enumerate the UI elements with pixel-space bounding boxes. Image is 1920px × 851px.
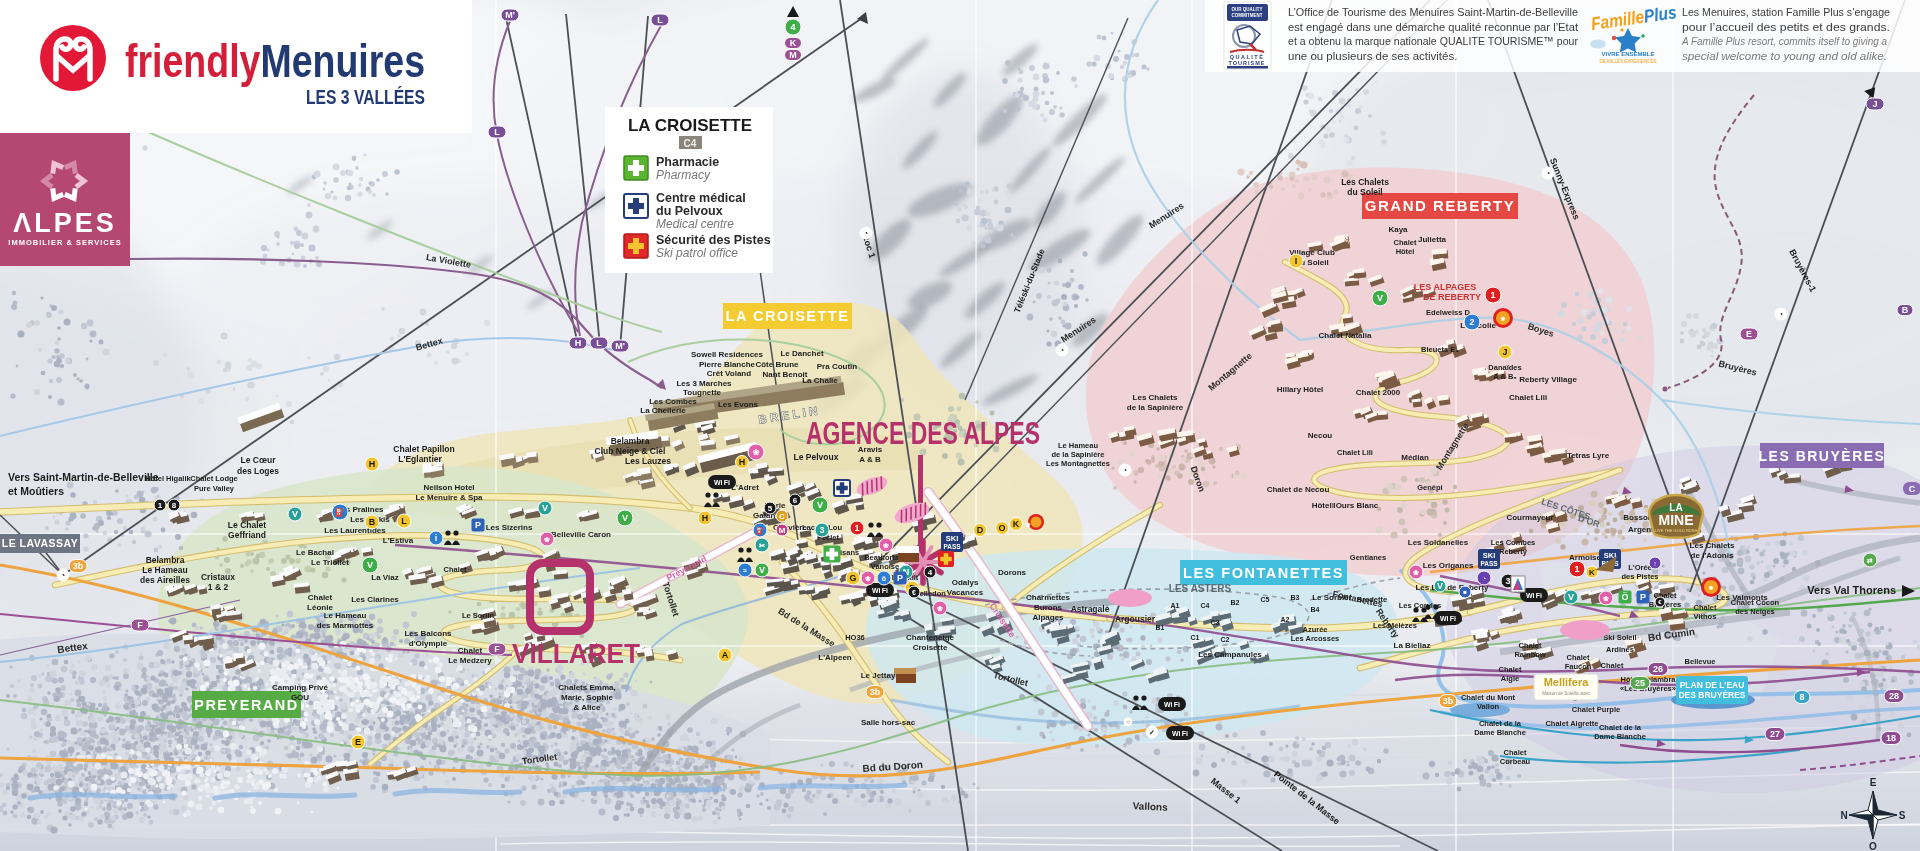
svg-text:28: 28 <box>1889 691 1899 701</box>
svg-text:Wi Fi: Wi Fi <box>1526 592 1542 599</box>
svg-text:Sowell Residences: Sowell Residences <box>691 350 764 359</box>
svg-text:✄: ✄ <box>759 542 765 549</box>
svg-text:Salle hors-sac: Salle hors-sac <box>861 718 916 727</box>
svg-text:Chalet de Necou: Chalet de Necou <box>1267 485 1330 494</box>
svg-text:VIVRE ENSEMBLE: VIVRE ENSEMBLE <box>1601 51 1654 57</box>
svg-text:V: V <box>759 565 765 575</box>
svg-text:LES 3 VALLÉES: LES 3 VALLÉES <box>306 85 425 108</box>
svg-text:Chanteneige: Chanteneige <box>906 633 955 642</box>
svg-text:Chalet Lili: Chalet Lili <box>1337 448 1373 457</box>
svg-text:C3: C3 <box>1211 619 1220 626</box>
svg-text:↑: ↑ <box>1653 560 1657 567</box>
svg-text:Nant Benoit: Nant Benoit <box>763 370 808 379</box>
svg-text:Vithos: Vithos <box>1694 612 1717 621</box>
svg-text:O: O <box>1869 841 1877 851</box>
svg-text:Astragale: Astragale <box>1071 604 1110 614</box>
svg-text:OUR QUALITY: OUR QUALITY <box>1232 7 1263 12</box>
svg-text:Dame Blanche: Dame Blanche <box>1594 732 1646 741</box>
svg-text:M': M' <box>615 341 625 351</box>
svg-text:Hôtel‖Ours Blanc: Hôtel‖Ours Blanc <box>1312 501 1379 510</box>
svg-text:K: K <box>790 38 797 48</box>
svg-text:A & B: A & B <box>859 455 881 464</box>
svg-text:La Biellaz: La Biellaz <box>1394 641 1431 650</box>
svg-text:Belambra: Belambra <box>611 436 650 446</box>
svg-text:Le Hameau: Le Hameau <box>142 565 187 575</box>
svg-text:SKI: SKI <box>1483 551 1496 560</box>
svg-text:1: 1 <box>854 523 859 533</box>
svg-text:Gentianes: Gentianes <box>1350 553 1386 562</box>
svg-text:B2: B2 <box>1231 599 1240 606</box>
svg-text:Chalet du Mont: Chalet du Mont <box>1461 693 1516 702</box>
svg-text:Tougnette: Tougnette <box>683 388 722 397</box>
svg-text:8: 8 <box>1799 692 1804 702</box>
svg-text:Danaïdes: Danaïdes <box>1488 363 1521 372</box>
svg-text:S: S <box>1899 810 1906 821</box>
svg-text:Marie, Sophie: Marie, Sophie <box>561 693 614 702</box>
svg-text:L'Orée: L'Orée <box>1628 563 1651 572</box>
svg-text:Cristaux: Cristaux <box>201 572 235 582</box>
svg-text:3b: 3b <box>73 561 84 571</box>
svg-text:Les Combes: Les Combes <box>649 397 697 406</box>
svg-text:V: V <box>1568 592 1574 602</box>
svg-text:Les Balcons: Les Balcons <box>404 629 452 638</box>
svg-text:L’Office de Tourisme des Menui: L’Office de Tourisme des Menuires Saint-… <box>1288 6 1578 18</box>
svg-text:Chalet: Chalet <box>1567 653 1590 662</box>
svg-text:Chalet Lodge: Chalet Lodge <box>190 474 238 483</box>
svg-text:K: K <box>1013 519 1020 529</box>
svg-text:F: F <box>137 620 143 630</box>
svg-text:Rainbow: Rainbow <box>1514 650 1545 659</box>
svg-text:◔: ◔ <box>1482 575 1486 582</box>
svg-text:PASS: PASS <box>1480 560 1498 567</box>
svg-text:H: H <box>702 513 709 523</box>
svg-text:27: 27 <box>1770 729 1780 739</box>
svg-text:La Challe: La Challe <box>802 376 838 385</box>
svg-text:Geffriand: Geffriand <box>228 530 266 540</box>
svg-text:Chalet 2000: Chalet 2000 <box>1356 388 1401 397</box>
svg-text:Le Triollet: Le Triollet <box>311 558 349 567</box>
svg-text:≈: ≈ <box>743 567 747 574</box>
svg-text:Chalet Lili: Chalet Lili <box>1509 393 1547 402</box>
svg-text:❀: ❀ <box>865 575 871 582</box>
svg-text:QUALITÉ: QUALITÉ <box>1230 53 1265 60</box>
svg-text:Le Hameau: Le Hameau <box>1058 441 1098 450</box>
svg-text:L: L <box>657 15 663 25</box>
svg-text:C4: C4 <box>1201 602 1210 609</box>
svg-text:C: C <box>1909 484 1916 494</box>
svg-text:3: 3 <box>1505 576 1510 586</box>
svg-text:Belleville Caron: Belleville Caron <box>551 530 611 539</box>
svg-text:Chalet: Chalet <box>458 646 483 655</box>
svg-text:Mellifera: Mellifera <box>1544 676 1590 688</box>
svg-text:La Cheilerie: La Cheilerie <box>640 406 686 415</box>
svg-text:Wi Fi: Wi Fi <box>1164 701 1180 708</box>
svg-text:Ardines: Ardines <box>1606 645 1634 654</box>
svg-text:L'Eglantier: L'Eglantier <box>398 454 442 464</box>
svg-text:est engagé dans une démarche q: est engagé dans une démarche qualité rec… <box>1288 21 1579 33</box>
svg-text:Vallon: Vallon <box>1477 702 1500 711</box>
svg-text:Les Lys de Reberty: Les Lys de Reberty <box>1415 583 1489 592</box>
svg-text:⛽: ⛽ <box>335 507 345 517</box>
svg-text:26: 26 <box>1653 664 1663 674</box>
svg-text:Le Jettay: Le Jettay <box>861 671 896 680</box>
svg-text:MINE: MINE <box>1659 512 1694 528</box>
svg-text:H: H <box>739 457 746 467</box>
svg-text:Chalet de la: Chalet de la <box>1479 719 1522 728</box>
svg-text:pour l’accueil des petits et d: pour l’accueil des petits et des grands. <box>1682 21 1890 33</box>
svg-text:€: € <box>912 589 916 596</box>
svg-text:Les Campanules: Les Campanules <box>1198 650 1262 659</box>
svg-text:PLAN DE L’EAU: PLAN DE L’EAU <box>1680 680 1745 690</box>
svg-text:Pharmacie: Pharmacie <box>656 155 719 169</box>
svg-text:AGENCE DES ALPES: AGENCE DES ALPES <box>806 416 1040 451</box>
svg-text:B1: B1 <box>1156 624 1165 631</box>
svg-text:B4: B4 <box>1311 606 1320 613</box>
svg-text:Hôtel: Hôtel <box>1396 247 1415 256</box>
svg-text:8: 8 <box>172 501 177 510</box>
svg-text:L'Alpeen: L'Alpeen <box>818 653 852 662</box>
svg-text:Wi Fi: Wi Fi <box>1172 730 1188 737</box>
svg-text:Chalet: Chalet <box>1601 661 1624 670</box>
svg-text:D: D <box>977 525 984 535</box>
svg-text:Alpages: Alpages <box>1032 613 1064 622</box>
svg-text:F: F <box>494 644 500 654</box>
svg-text:B: B <box>1902 305 1909 315</box>
svg-text:V: V <box>1437 581 1443 591</box>
svg-text:Vallons: Vallons <box>1132 800 1168 813</box>
svg-text:C4: C4 <box>684 138 697 149</box>
svg-text:Club Neige & Ciel: Club Neige & Ciel <box>595 446 666 456</box>
svg-text:V: V <box>817 500 823 510</box>
svg-text:Fauçon: Fauçon <box>1565 662 1592 671</box>
svg-text:Pra Coutin: Pra Coutin <box>817 362 858 371</box>
svg-text:GOU: GOU <box>291 693 309 702</box>
svg-text:L: L <box>494 127 500 137</box>
svg-text:Maison de Soleille avec: Maison de Soleille avec <box>1542 691 1590 696</box>
svg-text:Les Arcosses: Les Arcosses <box>1291 634 1340 643</box>
svg-text:Dorons: Dorons <box>998 568 1027 577</box>
svg-text:A & B₅: A & B₅ <box>1493 372 1517 381</box>
svg-text:❀: ❀ <box>544 536 550 543</box>
svg-text:B3: B3 <box>1291 594 1300 601</box>
svg-text:V: V <box>1377 293 1383 303</box>
svg-text:Vers Val Thorens: Vers Val Thorens <box>1807 584 1896 596</box>
svg-text:E: E <box>1746 329 1752 339</box>
svg-text:Charmettes: Charmettes <box>1026 593 1071 602</box>
svg-text:Hillary Hôtel: Hillary Hôtel <box>1277 385 1324 394</box>
svg-text:C1: C1 <box>1191 634 1200 641</box>
svg-text:Chalet Papillon: Chalet Papillon <box>393 444 454 454</box>
svg-text:SKI: SKI <box>946 534 959 543</box>
svg-text:Chalets Emma,: Chalets Emma, <box>558 683 615 692</box>
svg-text:P: P <box>475 520 481 530</box>
svg-text:O: O <box>998 523 1005 533</box>
svg-text:de la Sapinière: de la Sapinière <box>1127 403 1184 412</box>
svg-text:Les Lauzes: Les Lauzes <box>625 456 671 466</box>
svg-text:Le Cœur: Le Cœur <box>241 455 277 465</box>
svg-text:des Marmottes: des Marmottes <box>317 621 374 630</box>
svg-text:LES FONTANETTES: LES FONTANETTES <box>1183 565 1344 581</box>
svg-text:Les 3 Marches: Les 3 Marches <box>676 379 732 388</box>
svg-text:Corbeau: Corbeau <box>1500 757 1531 766</box>
svg-text:VILLARET: VILLARET <box>512 638 640 669</box>
svg-text:Les Mélèzes: Les Mélèzes <box>1373 621 1417 630</box>
svg-text:1 & 2: 1 & 2 <box>208 582 229 592</box>
svg-text:3b: 3b <box>870 687 881 697</box>
svg-text:A1: A1 <box>1171 602 1180 609</box>
svg-text:Chalet: Chalet <box>308 593 333 602</box>
svg-text:✓: ✓ <box>1149 729 1155 736</box>
svg-text:M: M <box>789 50 797 60</box>
svg-text:Chalet: Chalet <box>1499 665 1522 674</box>
svg-text:GRAND REBERTY: GRAND REBERTY <box>1365 197 1515 214</box>
svg-text:Les Chalets: Les Chalets <box>1133 393 1178 402</box>
svg-text:du Soleil: du Soleil <box>1347 187 1382 197</box>
svg-text:Chalet: Chalet <box>444 565 467 574</box>
svg-text:L: L <box>401 516 407 526</box>
svg-text:Le Sorlin: Le Sorlin <box>462 611 495 620</box>
svg-text:◔: ◔ <box>61 571 66 580</box>
svg-text:LES ALPAGES: LES ALPAGES <box>1414 282 1477 292</box>
svg-text:HO36: HO36 <box>845 633 865 642</box>
svg-text:Le Chalet: Le Chalet <box>228 520 266 530</box>
svg-text:special welcome to young and o: special welcome to young and old alike. <box>1682 50 1887 62</box>
svg-text:C5: C5 <box>1261 596 1270 603</box>
svg-text:○: ○ <box>1126 719 1130 725</box>
svg-text:COMMITMENT: COMMITMENT <box>1232 13 1263 18</box>
svg-text:Argousier: Argousier <box>1115 614 1156 624</box>
svg-text:i: i <box>435 533 438 543</box>
svg-text:Necou: Necou <box>1308 431 1333 440</box>
svg-text:J: J <box>1872 99 1877 109</box>
svg-text:Chalet de la: Chalet de la <box>1599 723 1642 732</box>
svg-text:◔: ◔ <box>1123 466 1128 475</box>
svg-text:V: V <box>367 560 373 570</box>
svg-text:Medical centre: Medical centre <box>656 217 734 231</box>
svg-text:V: V <box>542 503 548 513</box>
svg-text:❀: ❀ <box>1603 595 1609 602</box>
svg-text:L'Estiva: L'Estiva <box>383 536 414 545</box>
svg-text:Courmayeur: Courmayeur <box>1506 513 1553 522</box>
svg-text:3b: 3b <box>1443 696 1454 706</box>
svg-text:G: G <box>849 573 856 583</box>
svg-text:❀: ❀ <box>883 542 889 549</box>
svg-text:◔: ◔ <box>1060 346 1065 355</box>
svg-text:Centre médical: Centre médical <box>656 191 746 205</box>
svg-text:C: C <box>779 512 785 521</box>
svg-text:Wi Fi: Wi Fi <box>872 587 888 594</box>
svg-text:✸: ✸ <box>1499 316 1506 322</box>
svg-text:La Viaz: La Viaz <box>371 573 398 582</box>
svg-text:LE LAVASSAY: LE LAVASSAY <box>2 537 79 549</box>
svg-text:6: 6 <box>793 496 798 505</box>
svg-text:Dame Blanche: Dame Blanche <box>1474 728 1526 737</box>
svg-text:2: 2 <box>1469 317 1474 327</box>
svg-text:✸: ✸ <box>1707 585 1714 591</box>
svg-text:Les Origanes: Les Origanes <box>1423 561 1474 570</box>
svg-text:Ski patrol office: Ski patrol office <box>656 246 738 260</box>
svg-text:Genêpi: Genêpi <box>1417 483 1442 492</box>
svg-text:Les Clarines: Les Clarines <box>351 595 399 604</box>
svg-text:LIVE THE GOLD RUSH: LIVE THE GOLD RUSH <box>1655 528 1698 533</box>
svg-text:Reberty Village: Reberty Village <box>1519 375 1577 384</box>
svg-text:du Pelvoux: du Pelvoux <box>656 204 723 218</box>
svg-text:LES ASTERS: LES ASTERS <box>1169 583 1232 594</box>
svg-text:Hôtel Higalik: Hôtel Higalik <box>145 474 191 483</box>
svg-text:Les Sizerins: Les Sizerins <box>486 523 533 532</box>
svg-text:Wi Fi: Wi Fi <box>1440 615 1456 622</box>
svg-text:Chalet Natalia: Chalet Natalia <box>1319 331 1372 340</box>
svg-text:Julietta: Julietta <box>1418 235 1447 244</box>
svg-text:Aigle: Aigle <box>1501 674 1519 683</box>
svg-text:Chalet: Chalet <box>1504 748 1527 757</box>
svg-text:Vacances: Vacances <box>947 588 984 597</box>
svg-text:DE REBERTY: DE REBERTY <box>1423 292 1481 302</box>
svg-text:Odalys: Odalys <box>952 578 979 587</box>
svg-text:Le Danchet: Le Danchet <box>780 349 823 358</box>
svg-text:Ski Soleil: Ski Soleil <box>1603 633 1636 642</box>
svg-text:Kaya: Kaya <box>1388 225 1408 234</box>
svg-text:des Loges: des Loges <box>237 466 279 476</box>
svg-text:4: 4 <box>928 568 933 577</box>
svg-text:d'Olympie: d'Olympie <box>409 639 448 648</box>
svg-text:Le Menuire & Spa: Le Menuire & Spa <box>415 493 483 502</box>
svg-text:✸: ✸ <box>1024 522 1031 528</box>
svg-text:Bleuets E₄: Bleuets E₄ <box>1421 345 1459 354</box>
svg-text:P: P <box>1640 592 1646 602</box>
svg-text:et Moûtiers: et Moûtiers <box>8 485 64 497</box>
svg-text:TOURISME: TOURISME <box>1229 60 1266 66</box>
svg-text:Le Medzery: Le Medzery <box>448 656 492 665</box>
svg-text:H: H <box>575 338 582 348</box>
svg-text:Armoise: Armoise <box>1569 553 1602 562</box>
svg-text:Chalet Aigrette: Chalet Aigrette <box>1545 719 1598 728</box>
svg-text:A2: A2 <box>1281 616 1290 623</box>
svg-text:K: K <box>1589 568 1595 577</box>
svg-text:V: V <box>292 509 298 519</box>
svg-text:Chalet: Chalet <box>1519 641 1542 650</box>
svg-text:IMMOBILIER & SERVICES: IMMOBILIER & SERVICES <box>8 238 121 247</box>
svg-text:◔: ◔ <box>1779 310 1784 319</box>
svg-text:ΛLPES: ΛLPES <box>13 208 117 238</box>
svg-text:1: 1 <box>1490 290 1495 300</box>
svg-text:3: 3 <box>819 525 824 535</box>
svg-text:& Alice: & Alice <box>574 703 601 712</box>
svg-text:J: J <box>1502 347 1507 357</box>
svg-text:Les Combes: Les Combes <box>1491 538 1536 547</box>
svg-text:LES BRUYÈRES: LES BRUYÈRES <box>1759 448 1886 464</box>
svg-text:A: A <box>722 650 729 660</box>
svg-text:Ö: Ö <box>1621 592 1628 602</box>
svg-text:et a obtenu la marque national: et a obtenu la marque nationale QUALITE … <box>1288 35 1578 47</box>
svg-text:friendlyMenuires: friendlyMenuires <box>125 34 425 87</box>
svg-text:ö: ö <box>882 575 886 582</box>
svg-text:C2: C2 <box>1221 636 1230 643</box>
svg-text:4: 4 <box>790 22 795 32</box>
svg-text:◔: ◔ <box>1546 169 1551 178</box>
svg-text:Pierre Blanche: Pierre Blanche <box>699 360 756 369</box>
svg-text:◔: ◔ <box>864 229 869 238</box>
svg-text:⛽: ⛽ <box>756 526 765 535</box>
svg-text:Vers Saint-Martin-de-Bellevill: Vers Saint-Martin-de-Belleville <box>8 471 159 483</box>
svg-text:H: H <box>369 459 376 469</box>
svg-text:Azurée: Azurée <box>1302 625 1327 634</box>
svg-text:Chalet: Chalet <box>1694 603 1717 612</box>
svg-text:Pure Valley: Pure Valley <box>194 484 235 493</box>
svg-text:des Aireilles: des Aireilles <box>140 575 190 585</box>
svg-text:Les Montagnettes: Les Montagnettes <box>1046 459 1110 468</box>
svg-text:E: E <box>355 737 361 747</box>
svg-text:Neilson Hotel: Neilson Hotel <box>423 483 474 492</box>
svg-text:Bellevue: Bellevue <box>1685 657 1716 666</box>
svg-text:Médian: Médian <box>1401 453 1429 462</box>
svg-text:25: 25 <box>1635 678 1645 688</box>
svg-text:Chalet: Chalet <box>1394 238 1417 247</box>
svg-text:M: M <box>779 526 786 535</box>
svg-text:M': M' <box>505 10 515 20</box>
svg-text:Le Sorbier: Le Sorbier <box>1312 593 1352 602</box>
svg-text:5: 5 <box>768 504 773 513</box>
svg-text:18: 18 <box>1886 733 1896 743</box>
svg-text:❀: ❀ <box>937 605 943 612</box>
svg-text:I: I <box>1295 256 1298 266</box>
svg-text:■: ■ <box>1463 589 1467 595</box>
svg-text:Croisette: Croisette <box>913 643 948 652</box>
svg-text:LA CROISETTE: LA CROISETTE <box>726 308 850 324</box>
svg-text:Les Menuires, station Famille: Les Menuires, station Famille Plus s’eng… <box>1682 6 1890 18</box>
svg-text:Les Evons: Les Evons <box>718 400 759 409</box>
svg-text:❀: ❀ <box>1413 569 1419 576</box>
svg-text:Sécurité des Pistes: Sécurité des Pistes <box>656 233 771 247</box>
svg-text:⇄: ⇄ <box>1866 557 1873 564</box>
svg-text:Belambra: Belambra <box>146 555 185 565</box>
svg-text:E: E <box>1870 777 1877 788</box>
svg-text:Les Chalets: Les Chalets <box>1341 177 1389 187</box>
svg-text:B: B <box>369 517 376 527</box>
svg-text:Vanoise: Vanoise <box>871 562 899 571</box>
svg-text:P: P <box>897 573 903 583</box>
svg-text:Aravis: Aravis <box>858 445 883 454</box>
svg-text:Les Soldanelles: Les Soldanelles <box>1408 538 1469 547</box>
svg-text:Chalet Purple: Chalet Purple <box>1572 705 1620 714</box>
svg-text:LA CROISETTE: LA CROISETTE <box>628 116 752 135</box>
svg-text:Camping Privé: Camping Privé <box>272 683 329 692</box>
svg-text:1: 1 <box>1574 564 1579 574</box>
svg-text:PREYERAND: PREYERAND <box>194 697 299 713</box>
svg-text:Crêt Voland: Crêt Voland <box>707 369 751 378</box>
svg-text:Tetras Lyre: Tetras Lyre <box>1567 451 1610 460</box>
svg-text:une ou plusieurs de ses activi: une ou plusieurs de ses activités. <box>1288 50 1457 62</box>
svg-text:N: N <box>1840 810 1847 821</box>
svg-text:PASS: PASS <box>943 543 961 550</box>
svg-text:DES BRUYÈRES: DES BRUYÈRES <box>1678 690 1745 700</box>
svg-text:1: 1 <box>158 501 163 510</box>
svg-text:Reberty: Reberty <box>1499 547 1528 556</box>
svg-text:Bredette: Bredette <box>1357 595 1387 604</box>
svg-text:Côte Brune: Côte Brune <box>755 360 799 369</box>
svg-text:Wi Fi: Wi Fi <box>714 479 730 486</box>
svg-text:DE MILLES EXPÉRIENCES: DE MILLES EXPÉRIENCES <box>1600 58 1657 64</box>
svg-text:V: V <box>622 513 628 523</box>
svg-text:Edelweiss D: Edelweiss D <box>1426 308 1470 317</box>
svg-text:Le Bachal: Le Bachal <box>296 548 334 557</box>
svg-text:Les Chalets: Les Chalets <box>1690 541 1735 550</box>
svg-text:de la Sapinière: de la Sapinière <box>1052 450 1105 459</box>
svg-text:L: L <box>596 338 602 348</box>
svg-text:Burons: Burons <box>1034 603 1063 612</box>
svg-text:de l'Adonis: de l'Adonis <box>1691 551 1734 560</box>
svg-text:des Neiges: des Neiges <box>1735 607 1775 616</box>
